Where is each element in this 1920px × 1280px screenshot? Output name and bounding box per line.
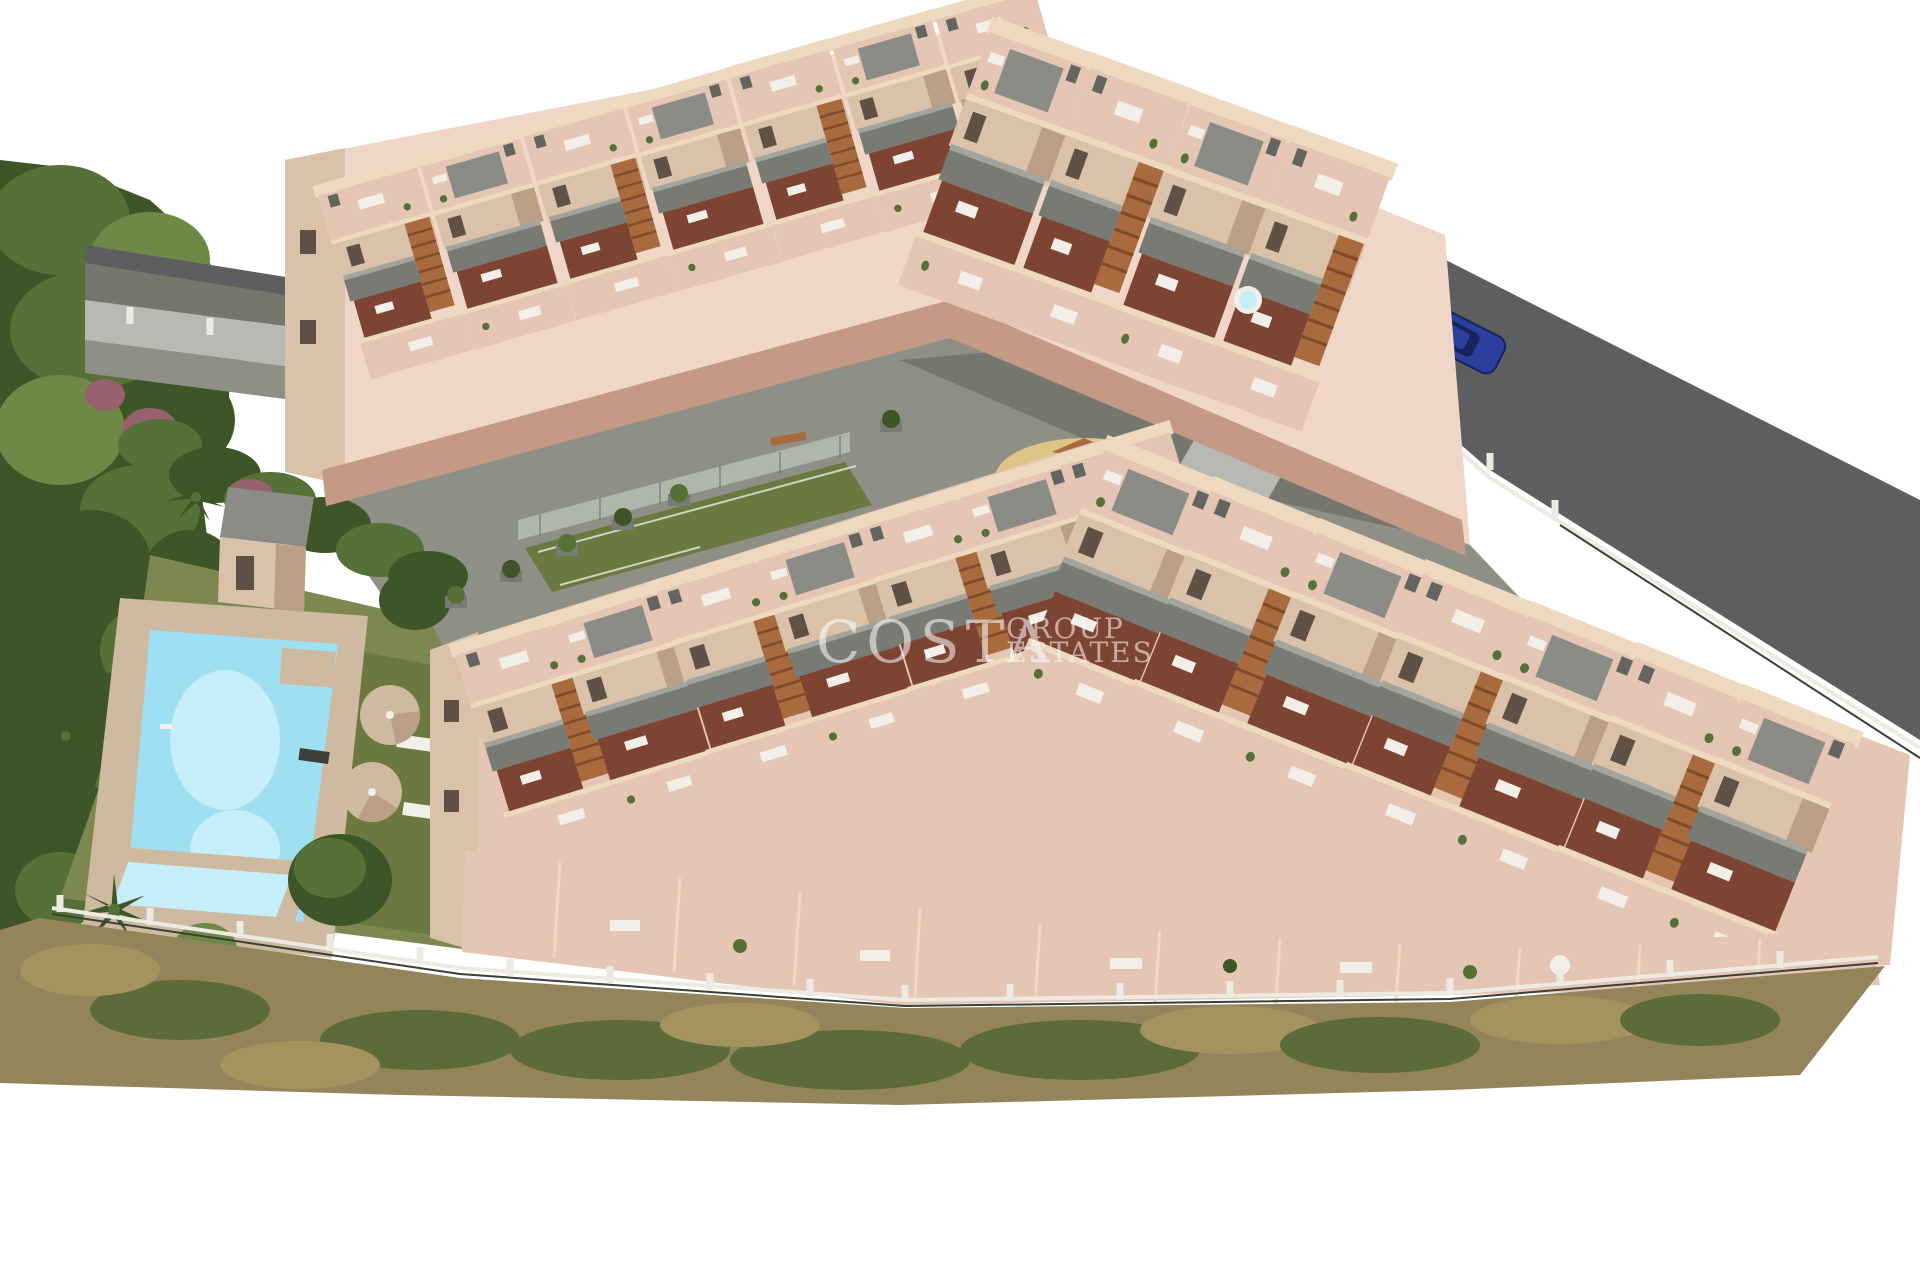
watermark-bottom: ESTATES xyxy=(1006,636,1154,669)
property-render: COSTA GROUP ESTATES xyxy=(0,0,1920,1280)
pool-house xyxy=(218,487,314,612)
umbrella-icon xyxy=(360,685,420,745)
render-canvas: COSTA GROUP ESTATES xyxy=(0,0,1920,1280)
pool-ladder-icon xyxy=(160,724,172,729)
flowering-shrub xyxy=(85,379,125,411)
pool-steps xyxy=(279,648,335,688)
watermark: COSTA GROUP ESTATES xyxy=(816,608,1154,676)
